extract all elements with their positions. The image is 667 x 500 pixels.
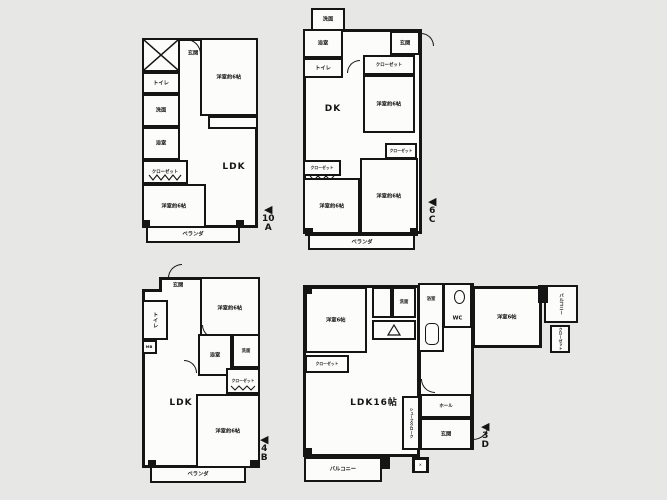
sink-icon xyxy=(387,324,401,336)
pillar xyxy=(148,460,156,468)
room-label: LDK16帖 xyxy=(350,399,398,408)
room-label: ベランダ xyxy=(187,472,208,478)
bedroom: 洋室約6帖 xyxy=(200,38,258,116)
bathroom: 浴室 xyxy=(418,283,444,352)
ldk-room: LDK xyxy=(162,396,200,412)
room-label: WC xyxy=(449,315,466,321)
meter-box: ✕ xyxy=(412,457,429,473)
veranda: ベランダ xyxy=(308,234,415,250)
bathtub-icon xyxy=(425,323,439,345)
room-label: 洋室約6帖 xyxy=(217,74,242,80)
room-label: クローゼット xyxy=(315,362,338,366)
side-balcony: バルコニー xyxy=(544,285,578,323)
bedroom: 洋室約6帖 xyxy=(196,394,260,468)
entrance-room: 玄関 xyxy=(390,31,420,55)
pillar xyxy=(303,448,312,457)
balcony: バルコニー xyxy=(304,457,382,482)
outline-notch xyxy=(142,277,162,292)
meter-box: MB xyxy=(142,340,157,354)
bedroom: 洋室約6帖 xyxy=(363,75,415,133)
closet: クローゼット xyxy=(226,368,260,394)
bedroom: 洋室約6帖 xyxy=(303,178,360,234)
room-label: 玄関 xyxy=(400,40,411,46)
pillar xyxy=(538,285,548,303)
room-label: 洋室6帖 xyxy=(326,317,346,323)
room-label: 浴室 xyxy=(210,352,221,358)
room-label: 洗面 xyxy=(156,108,167,114)
marker-unit: B xyxy=(261,454,268,463)
bedroom: 洋室約6帖 xyxy=(360,158,418,234)
door-arc xyxy=(421,33,434,46)
unit-marker-d: ◀ 3 D xyxy=(481,421,489,451)
toilet-room: トイレ xyxy=(142,300,168,340)
room-label: 洋室約6帖 xyxy=(162,203,187,209)
washbasin: 洗面 xyxy=(392,287,416,318)
floor-plan-b: 玄関 トイレ MB 洋室約6帖 浴室 洗面 クローゼット LDK 洋室約6帖 ベ… xyxy=(140,268,270,490)
room-label: トイレ xyxy=(153,80,169,86)
closet: クローゼット xyxy=(305,355,349,373)
room-label: 玄関 xyxy=(173,283,184,289)
veranda: ベランダ xyxy=(150,466,246,483)
hall: ホール xyxy=(420,394,472,418)
dk-room: DK xyxy=(318,102,348,118)
bedroom: 洋室6帖 xyxy=(472,286,542,348)
closet: クローゼット xyxy=(303,160,341,176)
hanger-marks xyxy=(230,385,256,391)
pillar xyxy=(142,220,150,228)
room-label: 洋室約6帖 xyxy=(319,203,344,209)
ldk-room: LDK16帖 xyxy=(338,396,410,412)
stairwell-box xyxy=(142,38,180,72)
closet-strip xyxy=(208,116,258,129)
meter-box-mark: ✕ xyxy=(419,463,422,467)
entrance-room: 玄関 xyxy=(420,418,472,450)
closet: クローゼット xyxy=(363,55,415,75)
room-label: 洋室約6帖 xyxy=(377,101,402,107)
closet: クローゼット xyxy=(385,143,417,159)
washroom: 洗面 xyxy=(142,94,180,127)
room-label: ベランダ xyxy=(182,232,203,238)
ldk-room: LDK xyxy=(212,160,256,176)
wc-room: WC xyxy=(443,283,472,328)
entrance-room: 玄関 xyxy=(166,279,190,292)
pillar xyxy=(303,285,312,294)
bathroom: 浴室 xyxy=(303,29,343,58)
pillar xyxy=(380,457,390,469)
marker-unit: A xyxy=(265,224,272,233)
veranda: ベランダ xyxy=(146,226,240,243)
room-label: シューズクローク xyxy=(409,408,413,439)
room-label: 浴室 xyxy=(318,41,329,47)
toilet-room: トイレ xyxy=(303,58,343,78)
room-label: バルコニー xyxy=(330,467,356,473)
room-label: LDK xyxy=(169,399,192,408)
pillar xyxy=(250,460,258,468)
door-arc xyxy=(168,264,182,278)
room-label: LDK xyxy=(222,163,245,172)
unit-marker-c: ◀ 6 C xyxy=(428,196,436,226)
room-label: バルコニー xyxy=(559,293,564,315)
room-label: クローゼット xyxy=(376,63,402,68)
unit-marker-b: ◀ 4 B xyxy=(260,434,268,464)
washroom: 洗面 xyxy=(311,8,345,31)
crossed-box-icon xyxy=(144,40,178,70)
room-label: ホール xyxy=(439,404,452,409)
room-label: 浴室 xyxy=(425,297,437,302)
pillar xyxy=(410,228,418,236)
room-label: 洗面 xyxy=(242,349,251,354)
kitchen-counter xyxy=(372,287,392,318)
room-label: 洗面 xyxy=(323,17,334,23)
floorplan-sheet: 玄関 トイレ 洗面 浴室 クローゼット 洋室約6帖 洋室約6帖 LDK ベランダ… xyxy=(0,0,667,500)
floor-plan-c: 洗面 浴室 トイレ 玄関 クローゼット 洋室約6帖 DK クローゼット クローゼ… xyxy=(300,8,434,254)
room-label: クローゼット xyxy=(310,166,333,170)
room-label: MB xyxy=(146,345,153,349)
room-label: 洗面 xyxy=(400,300,409,305)
room-label: 洋室約6帖 xyxy=(218,305,243,311)
room-label: ベランダ xyxy=(351,239,372,245)
shoes-closet: シューズクローク xyxy=(402,396,420,450)
bathroom: 浴室 xyxy=(142,127,180,160)
toilet-icon xyxy=(454,290,465,304)
room-label: 玄関 xyxy=(441,431,452,437)
room-label: DK xyxy=(325,105,341,114)
room-label: 洋室6帖 xyxy=(497,314,517,320)
bedroom: 洋室6帖 xyxy=(305,287,367,353)
room-label: 洋室約6帖 xyxy=(216,428,241,434)
toilet-room: トイレ xyxy=(142,72,180,94)
room-label: クローゼット xyxy=(558,327,562,350)
room-label: 洋室約6帖 xyxy=(377,193,402,199)
marker-unit: C xyxy=(429,216,436,225)
floor-plan-d: 洋室6帖 バルコニー クローゼット 洋室6帖 クローゼット 洗面 浴室 WC L… xyxy=(300,278,600,492)
kitchen-sink-counter xyxy=(372,320,416,340)
meter-box-inner: ✕ xyxy=(415,460,426,471)
room-label: クローゼット xyxy=(231,379,254,383)
pillar xyxy=(305,228,313,236)
pillar xyxy=(236,220,244,228)
marker-unit: D xyxy=(481,441,488,450)
room-label: トイレ xyxy=(152,312,158,328)
unit-marker-a: ◀ 10 A xyxy=(262,204,275,234)
room-label: クローゼット xyxy=(389,149,412,153)
floor-plan-a: 玄関 トイレ 洗面 浴室 クローゼット 洋室約6帖 洋室約6帖 LDK ベランダ xyxy=(140,22,272,250)
washroom: 洗面 xyxy=(232,334,260,368)
room-label: 玄関 xyxy=(188,50,199,56)
closet: クローゼット xyxy=(550,325,570,353)
bedroom: 洋室約6帖 xyxy=(142,184,206,228)
room-label: トイレ xyxy=(315,65,331,71)
hanger-marks xyxy=(148,174,182,181)
closet: クローゼット xyxy=(142,160,188,184)
room-label: 浴室 xyxy=(156,141,167,147)
